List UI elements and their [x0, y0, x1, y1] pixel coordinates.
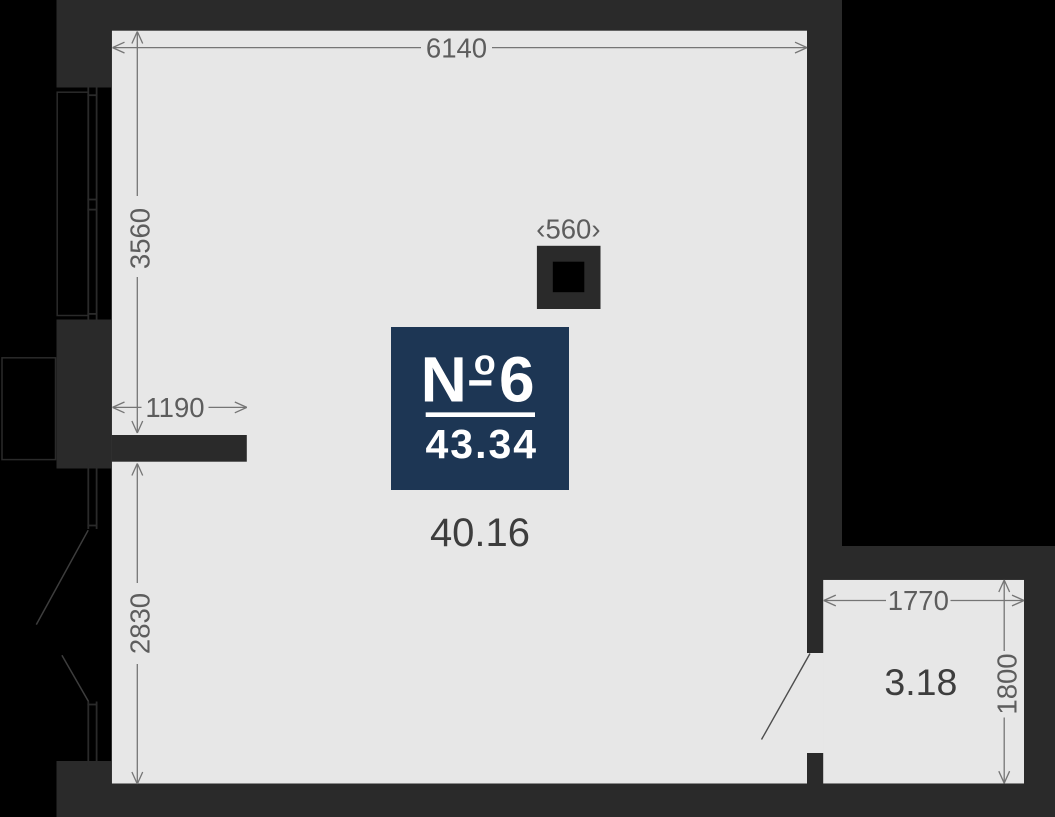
- svg-text:6: 6: [499, 344, 535, 416]
- svg-text:1770: 1770: [888, 585, 949, 616]
- svg-text:1800: 1800: [991, 653, 1022, 714]
- svg-text:2830: 2830: [124, 593, 155, 654]
- svg-text:1190: 1190: [145, 392, 204, 423]
- svg-text:N: N: [421, 344, 467, 416]
- svg-text:3560: 3560: [124, 208, 155, 269]
- svg-text:3.18: 3.18: [884, 661, 957, 703]
- svg-text:o: o: [474, 342, 496, 383]
- svg-text:40.16: 40.16: [430, 511, 530, 555]
- svg-text:‹560›: ‹560›: [536, 213, 600, 244]
- svg-text:43.34: 43.34: [425, 421, 538, 467]
- svg-text:6140: 6140: [426, 32, 487, 63]
